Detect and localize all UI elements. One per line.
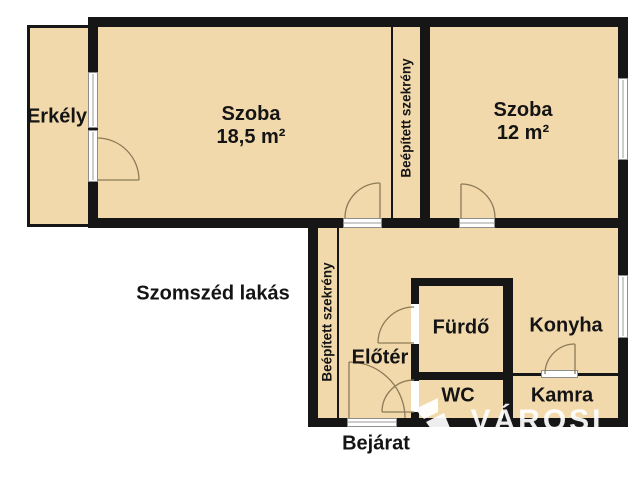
balcony-window	[88, 72, 98, 128]
balcony-door-glazing	[88, 130, 98, 182]
furdo-door-opening	[411, 304, 419, 344]
annotation-entrance: Bejárat	[342, 433, 410, 456]
floor-plan: Erkély Szoba 18,5 m² Szoba 12 m² Beépíte…	[0, 0, 640, 480]
wall-furdo-wc-divider	[411, 372, 513, 380]
annotation-neighbor-flat: Szomszéd lakás	[136, 283, 289, 306]
room-label-szoba-small: Szoba 12 m²	[494, 99, 553, 145]
room-label-closet-upper: Beépített szekrény	[399, 58, 414, 177]
kamra-door-opening	[541, 370, 578, 378]
entrance-door-opening	[347, 418, 397, 427]
room-label-erkely: Erkély	[27, 106, 87, 129]
szoba-large-door-opening	[343, 218, 382, 228]
room-label-furdo: Fürdő	[433, 317, 490, 340]
konyha-window	[618, 275, 628, 338]
room-area-szoba-small: 12 m²	[497, 122, 549, 144]
wall-furdo-right	[503, 278, 513, 418]
room-area-szoba-large: 18,5 m²	[217, 126, 286, 148]
szoba-small-window	[618, 78, 628, 160]
wall-closet-lower-line	[337, 228, 339, 418]
szoba-small-door-opening	[459, 218, 495, 228]
watermark-text: VÁROSI	[470, 404, 603, 438]
room-label-szoba-large: Szoba 18,5 m²	[217, 103, 286, 149]
watermark-logo-icon	[414, 398, 456, 434]
wall-furdo-top	[411, 278, 513, 286]
room-label-closet-lower: Beépített szekrény	[320, 262, 335, 381]
room-label-eloter: Előtér	[352, 347, 409, 370]
room-label-konyha: Konyha	[529, 315, 602, 338]
